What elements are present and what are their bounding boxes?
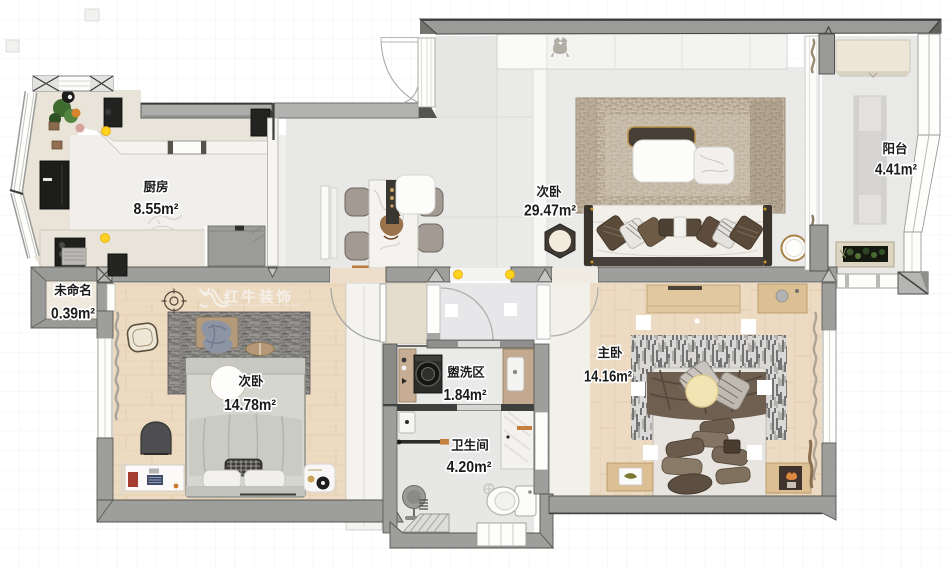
svg-text:厨房: 厨房 bbox=[143, 179, 168, 194]
svg-text:卫生间: 卫生间 bbox=[451, 438, 489, 453]
svg-text:4.20m²: 4.20m² bbox=[447, 459, 492, 476]
svg-text:8.55m²: 8.55m² bbox=[134, 201, 179, 218]
svg-text:未命名: 未命名 bbox=[53, 283, 92, 298]
svg-text:次卧: 次卧 bbox=[536, 184, 562, 199]
svg-text:阳台: 阳台 bbox=[882, 141, 907, 156]
svg-text:盥洗区: 盥洗区 bbox=[447, 365, 485, 380]
svg-text:次卧: 次卧 bbox=[238, 374, 264, 389]
svg-text:29.47m²: 29.47m² bbox=[524, 203, 576, 220]
svg-text:1.84m²: 1.84m² bbox=[444, 387, 487, 404]
svg-text:14.16m²: 14.16m² bbox=[584, 369, 632, 386]
svg-text:14.78m²: 14.78m² bbox=[224, 397, 276, 414]
svg-text:0.39m²: 0.39m² bbox=[51, 306, 95, 323]
svg-text:HONG NIU DECORATION GROUP: HONG NIU DECORATION GROUP bbox=[224, 304, 299, 308]
svg-text:4.41m²: 4.41m² bbox=[875, 162, 917, 179]
svg-text:主卧: 主卧 bbox=[597, 345, 623, 360]
